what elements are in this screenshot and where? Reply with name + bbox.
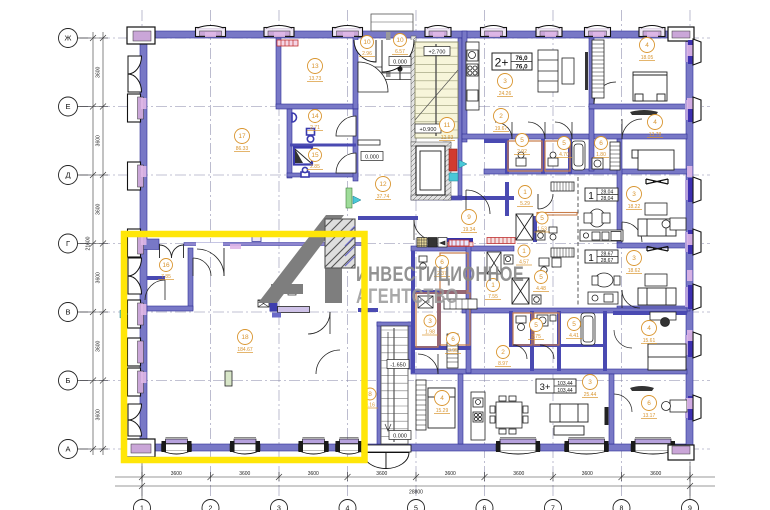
svg-text:10: 10: [396, 37, 404, 44]
svg-text:2.96: 2.96: [362, 51, 372, 57]
svg-text:103,44: 103,44: [557, 388, 573, 394]
svg-text:АГЕНТСТВО: АГЕНТСТВО: [356, 285, 459, 309]
svg-text:2.75: 2.75: [531, 334, 541, 340]
svg-text:В: В: [65, 308, 70, 317]
svg-text:7.85: 7.85: [161, 274, 171, 280]
svg-text:3600: 3600: [96, 66, 102, 77]
svg-text:5: 5: [562, 140, 566, 147]
svg-text:4: 4: [440, 395, 444, 402]
svg-text:3600: 3600: [96, 409, 102, 420]
svg-text:3: 3: [632, 255, 636, 262]
svg-text:2+: 2+: [495, 56, 509, 70]
svg-text:-1.650: -1.650: [390, 362, 406, 368]
svg-text:1: 1: [140, 506, 144, 510]
svg-text:13.73: 13.73: [309, 76, 322, 82]
svg-text:А: А: [65, 445, 70, 454]
svg-text:4: 4: [647, 325, 651, 332]
svg-text:4: 4: [346, 506, 350, 510]
svg-text:6: 6: [483, 506, 487, 510]
svg-text:2: 2: [209, 506, 213, 510]
svg-text:3600: 3600: [376, 471, 387, 477]
svg-text:5: 5: [520, 137, 524, 144]
svg-text:25.44: 25.44: [584, 392, 597, 398]
svg-text:13: 13: [311, 63, 319, 70]
svg-text:5: 5: [534, 322, 538, 329]
svg-text:3600: 3600: [96, 340, 102, 351]
svg-text:28,04: 28,04: [601, 190, 614, 196]
svg-text:15.29: 15.29: [436, 408, 449, 414]
svg-text:1: 1: [588, 253, 594, 264]
svg-text:3: 3: [632, 191, 636, 198]
svg-text:3: 3: [503, 78, 507, 85]
svg-text:3600: 3600: [239, 471, 250, 477]
svg-text:14: 14: [311, 113, 319, 120]
svg-text:1: 1: [523, 189, 527, 196]
svg-text:1.80: 1.80: [596, 152, 606, 158]
svg-text:2.85: 2.85: [310, 164, 320, 170]
svg-text:28,04: 28,04: [601, 196, 614, 202]
svg-text:18: 18: [241, 334, 249, 341]
svg-text:5: 5: [414, 506, 418, 510]
svg-text:4: 4: [653, 119, 657, 126]
svg-text:ИНВЕСТИЦИОННОЕ: ИНВЕСТИЦИОННОЕ: [356, 263, 524, 287]
svg-text:3600: 3600: [96, 135, 102, 146]
svg-text:15.61: 15.61: [643, 338, 656, 344]
svg-text:8: 8: [620, 506, 624, 510]
svg-text:2: 2: [499, 113, 503, 120]
svg-text:7: 7: [551, 506, 555, 510]
svg-text:1: 1: [522, 248, 526, 255]
svg-text:19.67: 19.67: [495, 126, 508, 132]
svg-text:4.48: 4.48: [536, 286, 546, 292]
svg-text:6: 6: [451, 336, 455, 343]
svg-text:9: 9: [467, 214, 471, 221]
svg-text:3: 3: [428, 318, 432, 325]
svg-text:1: 1: [588, 191, 594, 202]
svg-text:103,44: 103,44: [557, 381, 573, 387]
svg-text:12.93: 12.93: [441, 135, 454, 141]
svg-text:5: 5: [540, 215, 544, 222]
svg-text:3600: 3600: [513, 471, 524, 477]
svg-text:Г: Г: [66, 239, 70, 248]
svg-text:12: 12: [379, 181, 387, 188]
svg-text:+0.900: +0.900: [420, 127, 437, 133]
svg-text:15: 15: [311, 152, 319, 159]
svg-text:4.41: 4.41: [569, 333, 579, 339]
svg-text:3600: 3600: [582, 471, 593, 477]
svg-text:Е: Е: [65, 102, 70, 111]
svg-text:28,67: 28,67: [601, 258, 614, 264]
svg-text:3600: 3600: [171, 471, 182, 477]
svg-text:18.05: 18.05: [641, 55, 654, 61]
svg-text:4: 4: [645, 42, 649, 49]
svg-text:10: 10: [363, 39, 371, 46]
svg-text:0.000: 0.000: [393, 433, 407, 439]
svg-text:13.17: 13.17: [643, 413, 656, 419]
svg-text:5: 5: [539, 274, 543, 281]
svg-text:1.98: 1.98: [425, 330, 435, 336]
svg-text:0.000: 0.000: [365, 154, 379, 160]
svg-text:86.33: 86.33: [236, 146, 249, 152]
svg-text:16: 16: [162, 262, 170, 269]
svg-text:13.78: 13.78: [649, 132, 662, 138]
svg-text:5.29: 5.29: [520, 201, 530, 207]
svg-text:4.70: 4.70: [559, 152, 569, 158]
svg-text:8.97: 8.97: [498, 361, 508, 367]
svg-text:8: 8: [368, 391, 372, 398]
svg-text:3600: 3600: [96, 203, 102, 214]
svg-text:2.92: 2.92: [517, 149, 527, 155]
svg-text:24.26: 24.26: [499, 91, 512, 97]
svg-text:184.67: 184.67: [237, 347, 253, 353]
svg-text:+2.700: +2.700: [429, 49, 446, 55]
svg-text:6: 6: [647, 400, 651, 407]
svg-text:18.62: 18.62: [628, 268, 641, 274]
svg-text:Ж: Ж: [65, 34, 72, 43]
svg-text:2.71: 2.71: [310, 125, 320, 131]
svg-text:37.74: 37.74: [377, 194, 390, 200]
svg-text:3: 3: [277, 506, 281, 510]
svg-text:3600: 3600: [96, 272, 102, 283]
svg-text:6.57: 6.57: [395, 49, 405, 55]
svg-text:3600: 3600: [308, 471, 319, 477]
svg-text:17: 17: [238, 133, 246, 140]
svg-text:3.95: 3.95: [448, 348, 458, 354]
svg-text:1.53: 1.53: [537, 227, 547, 233]
svg-text:3600: 3600: [445, 471, 456, 477]
svg-text:28800: 28800: [409, 490, 423, 496]
svg-text:28,67: 28,67: [601, 252, 614, 258]
svg-text:19.34: 19.34: [463, 227, 476, 233]
svg-text:76,0: 76,0: [515, 64, 528, 71]
svg-text:9: 9: [688, 506, 692, 510]
svg-text:0.000: 0.000: [393, 59, 407, 65]
svg-text:3600: 3600: [650, 471, 661, 477]
svg-text:5: 5: [572, 321, 576, 328]
svg-text:6: 6: [599, 140, 603, 147]
svg-text:7.55: 7.55: [488, 294, 498, 300]
svg-text:11: 11: [444, 122, 451, 129]
svg-text:3+: 3+: [540, 382, 551, 393]
svg-text:3: 3: [588, 379, 592, 386]
svg-text:2: 2: [501, 349, 505, 356]
svg-text:Б: Б: [66, 376, 71, 385]
svg-text:76,0: 76,0: [515, 55, 528, 62]
svg-text:18.22: 18.22: [628, 204, 641, 210]
svg-text:Д: Д: [65, 171, 70, 180]
